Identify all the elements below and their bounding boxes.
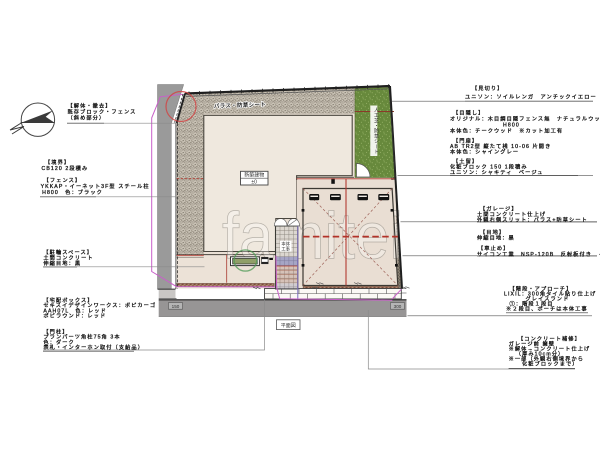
svg-text:ユニソン：シャキティ ベージュ: ユニソン：シャキティ ベージュ bbox=[450, 169, 544, 176]
svg-text:既存ブロック・フェンス: 既存ブロック・フェンス bbox=[68, 107, 137, 115]
svg-text:【見切り】: 【見切り】 bbox=[472, 85, 503, 92]
svg-text:YKKAP・イーネット3F型 スチール柱: YKKAP・イーネット3F型 スチール柱 bbox=[41, 182, 150, 190]
svg-text:平面図: 平面図 bbox=[281, 323, 296, 329]
svg-text:±0: ±0 bbox=[251, 180, 257, 186]
svg-text:表札・インターホン取付（支給品）: 表札・インターホン取付（支給品） bbox=[43, 343, 144, 351]
svg-text:新築建物: 新築建物 bbox=[244, 172, 264, 179]
svg-text:本体色：シャイングレー: 本体色：シャイングレー bbox=[450, 148, 519, 156]
svg-text:※２段目、ポーチは本体工事: ※２段目、ポーチは本体工事 bbox=[506, 305, 588, 313]
svg-text:伸縮目地：黒: 伸縮目地：黒 bbox=[477, 233, 515, 241]
svg-text:H800 色：ブラック: H800 色：ブラック bbox=[42, 188, 103, 196]
svg-text:オリジナル：木目調目隠フェンス無 ナチュラルウッド: オリジナル：木目調目隠フェンス無 ナチュラルウッド bbox=[450, 114, 600, 122]
svg-text:【フェンス】: 【フェンス】 bbox=[44, 177, 82, 184]
svg-text:ポピラウンド：レッド: ポピラウンド：レッド bbox=[43, 312, 106, 320]
svg-text:化粧ブロックまで）: 化粧ブロックまで） bbox=[522, 360, 579, 368]
svg-text:本体色：チークウッド ※カット加工有: 本体色：チークウッド ※カット加工有 bbox=[450, 126, 563, 134]
svg-text:工事: 工事 bbox=[281, 246, 290, 253]
svg-text:150: 150 bbox=[172, 304, 180, 309]
svg-text:CB120 2段積み: CB120 2段積み bbox=[42, 164, 89, 172]
svg-text:人工芝・防草シート: 人工芝・防草シート bbox=[373, 108, 379, 155]
svg-text:【境界】: 【境界】 bbox=[45, 158, 70, 166]
svg-text:伸縮目地：黒: 伸縮目地：黒 bbox=[43, 259, 81, 267]
svg-text:【目隠し】: 【目隠し】 bbox=[453, 108, 484, 116]
svg-text:【解体・撤去】: 【解体・撤去】 bbox=[68, 102, 112, 110]
svg-text:（斜め部分）: （斜め部分） bbox=[68, 113, 106, 121]
svg-text:300: 300 bbox=[394, 304, 402, 309]
svg-text:ユニソン：ソイルレンガ アンチックイエロー: ユニソン：ソイルレンガ アンチックイエロー bbox=[465, 93, 597, 101]
svg-text:サイコン工業 NSP-120B 反射板付き ４つ: サイコン工業 NSP-120B 反射板付き ４つ bbox=[477, 250, 600, 258]
